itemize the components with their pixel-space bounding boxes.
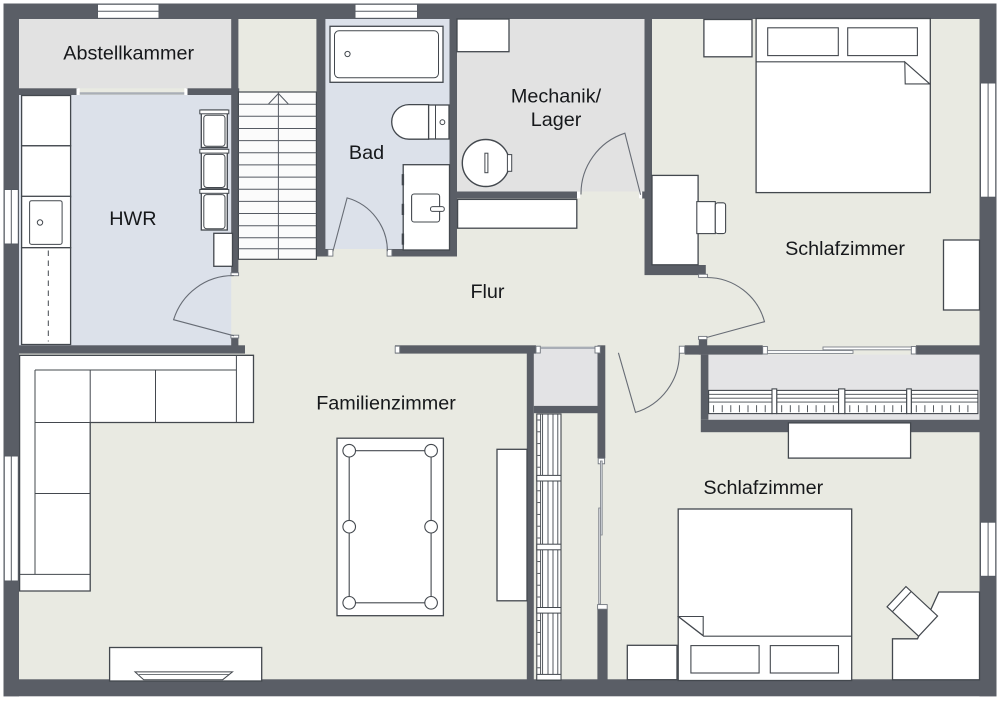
svg-text:Lager: Lager: [531, 109, 582, 131]
svg-text:Familienzimmer: Familienzimmer: [316, 392, 456, 414]
svg-text:Abstellkammer: Abstellkammer: [63, 42, 194, 64]
svg-text:Schlafzimmer: Schlafzimmer: [703, 477, 823, 499]
svg-text:Schlafzimmer: Schlafzimmer: [785, 238, 905, 260]
svg-text:Bad: Bad: [349, 142, 384, 164]
svg-text:Flur: Flur: [470, 281, 504, 303]
svg-text:Mechanik/: Mechanik/: [511, 85, 602, 107]
svg-text:HWR: HWR: [109, 208, 156, 230]
